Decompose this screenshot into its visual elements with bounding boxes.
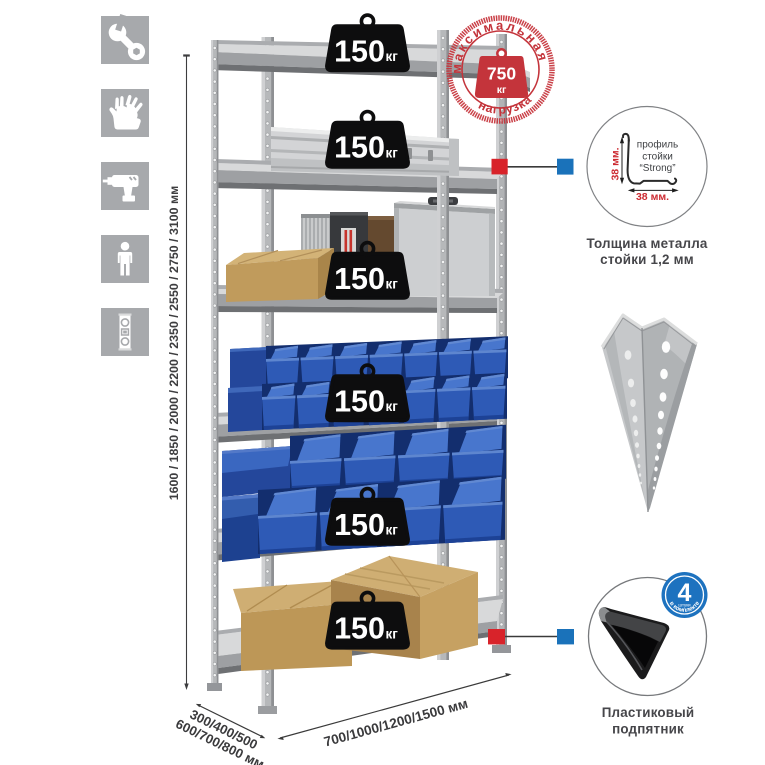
svg-text:38 мм.: 38 мм. xyxy=(636,191,669,203)
svg-text:профиль: профиль xyxy=(637,138,678,150)
svg-text:Толщина металла: Толщина металла xyxy=(586,236,707,251)
svg-text:подпятник: подпятник xyxy=(612,722,684,737)
svg-text:1600 / 1850 / 2000 / 2200 / 23: 1600 / 1850 / 2000 / 2200 / 2350 / 2550 … xyxy=(167,186,181,501)
svg-text:Пластиковый: Пластиковый xyxy=(602,705,695,720)
svg-text:38 мм.: 38 мм. xyxy=(610,147,622,180)
svg-text:“Strong”: “Strong” xyxy=(639,163,675,174)
svg-text:стойки: стойки xyxy=(642,152,673,163)
svg-text:750: 750 xyxy=(487,64,516,84)
svg-text:штуки: штуки xyxy=(678,603,691,608)
svg-text:кг: кг xyxy=(497,84,507,96)
svg-text:стойки 1,2 мм: стойки 1,2 мм xyxy=(600,252,694,267)
